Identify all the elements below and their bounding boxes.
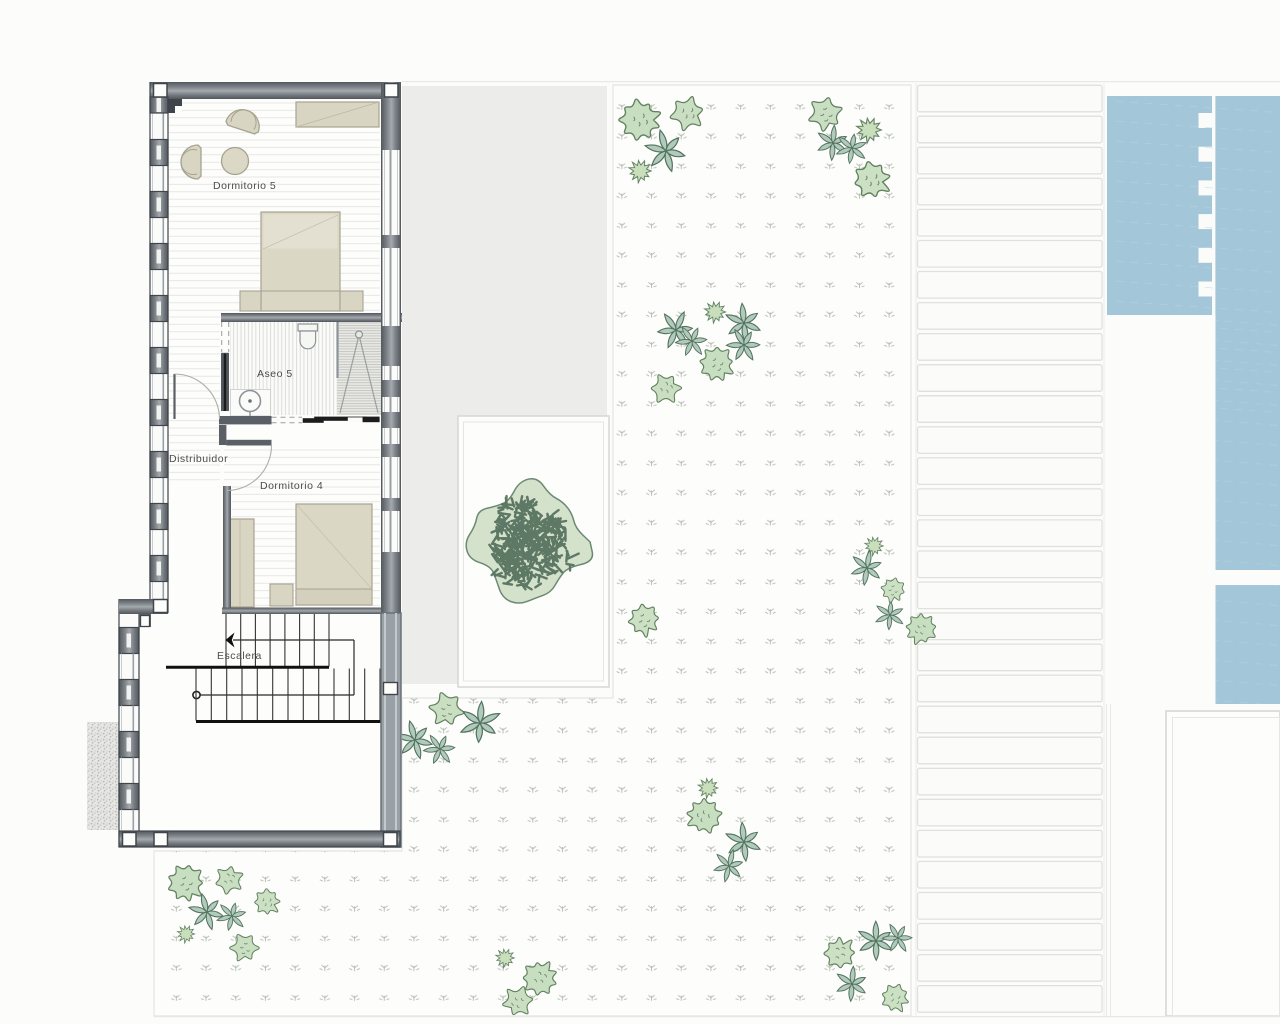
svg-text:Dormitorio 5: Dormitorio 5	[213, 180, 276, 192]
svg-text:Distribuidor: Distribuidor	[169, 453, 228, 465]
svg-text:Dormitorio 4: Dormitorio 4	[260, 480, 323, 492]
svg-text:Aseo 5: Aseo 5	[257, 368, 293, 380]
svg-text:Escalera: Escalera	[217, 650, 262, 662]
